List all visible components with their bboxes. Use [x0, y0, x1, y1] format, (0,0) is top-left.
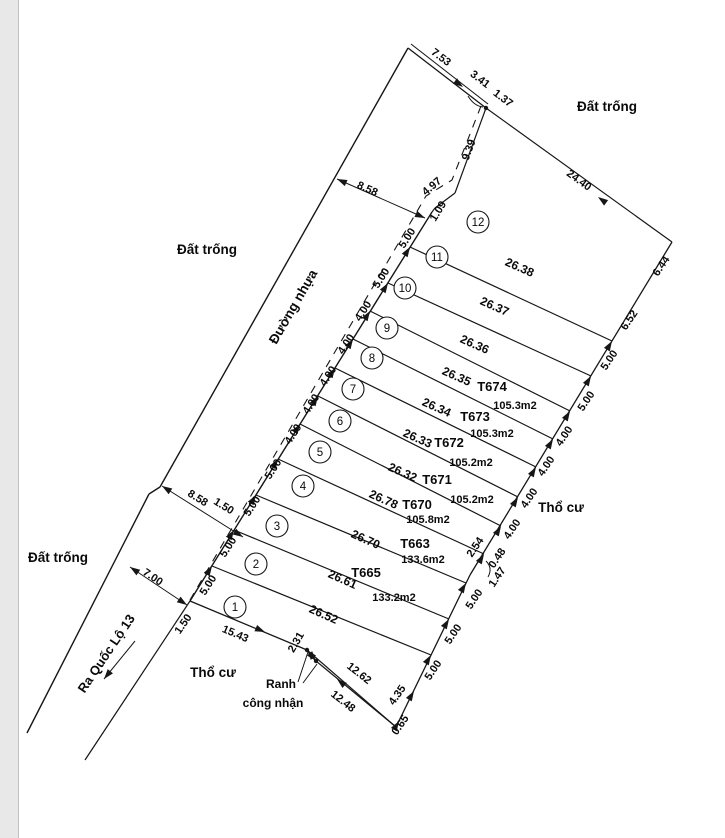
plot-number-text: 10 [399, 283, 412, 295]
junction-dot [484, 106, 488, 110]
area-label-tho-cu-e: Thổ cư [538, 500, 584, 515]
parcel-id-label: T665 [351, 565, 381, 580]
tick-arrow-icon [596, 194, 608, 205]
parcel-area-label: 133.2m2 [372, 592, 415, 604]
divider-line [370, 311, 570, 411]
rear-width-label: 4.00 [502, 517, 524, 541]
road-left-edge [160, 48, 408, 487]
dim-label: 4.97 [420, 175, 444, 198]
dim-label: 24.40 [564, 168, 593, 194]
parcel-area-label: 105.2m2 [449, 457, 492, 469]
dim-label: 9.39 [460, 138, 479, 162]
plot-length-label: 26.38 [503, 255, 536, 280]
dim-label: 7.00 [140, 567, 164, 589]
frontage-width-label: 4.00 [301, 392, 323, 417]
dim-label: 15.43 [220, 623, 250, 645]
dim-label: 1.50 [172, 612, 194, 636]
parcel-area-label: 105.3m2 [493, 400, 536, 412]
road-right-edge-lower [85, 601, 190, 760]
plot-number-text: 5 [317, 447, 323, 459]
junction-dot [305, 648, 309, 652]
area-label-dat-trong-w: Đất trống [177, 242, 237, 257]
area-label-dat-trong-sw: Đất trống [28, 550, 88, 565]
frontage-width-label: 5.00 [242, 494, 264, 519]
plot-number-text: 8 [369, 353, 375, 365]
plot-number-text: 7 [350, 384, 356, 396]
boundary-note-line2: công nhận [243, 696, 304, 710]
plot-length-label: 26.34 [420, 395, 453, 420]
tick-arrow-icon [254, 625, 266, 635]
tick-arrow-icon [458, 581, 469, 593]
plot-length-label: 26.36 [458, 332, 491, 357]
rear-width-label: 6.52 [619, 308, 641, 332]
dim-label: 2.31 [286, 630, 307, 655]
plot-number-text: 11 [431, 252, 443, 264]
parcel-id-label: T671 [422, 472, 452, 487]
frontage-width-label: 5.00 [198, 573, 220, 598]
dim-label: 7.53 [429, 46, 453, 68]
boundary-note-line1: Ranh [266, 677, 296, 691]
plot-number-text: 9 [384, 323, 390, 335]
plot-number-text: 3 [274, 521, 280, 533]
parcel-id-label: T672 [434, 435, 464, 450]
plot-number-text: 4 [300, 481, 307, 493]
plot-number-text: 1 [232, 602, 238, 614]
dim-label: 1.37 [491, 87, 515, 109]
plot-length-label: 26.33 [401, 426, 434, 451]
parcel-area-label: 105.2m2 [450, 494, 493, 506]
dim-label: 12.48 [328, 688, 357, 714]
leader-line [303, 664, 317, 683]
rear-width-label: 5.00 [464, 587, 486, 611]
plot-length-label: 26.52 [307, 602, 340, 627]
plot-length-label: 26.32 [386, 460, 419, 485]
parcel-id-label: T670 [402, 497, 432, 512]
junction-dot [314, 659, 318, 663]
plot-length-label: 26.37 [478, 294, 511, 319]
road-width-arrow-7-00-head-icon [128, 564, 140, 575]
rear-width-label: 6.44 [651, 253, 673, 278]
frontage-width-label: 5.00 [218, 535, 240, 560]
dim-label: 3.41 [468, 68, 492, 90]
dim-label: 8.58 [355, 179, 379, 199]
road-left-edge-jog [149, 487, 160, 494]
road-left-edge-lower [27, 494, 149, 733]
parcel-area-label: 133.6m2 [401, 554, 444, 566]
dim-label: 0.65 [389, 713, 411, 737]
dim-label: 1.09 [428, 199, 450, 224]
dim-label: 8.58 [185, 488, 210, 510]
highway-direction-label: Ra Quốc Lộ 13 [75, 612, 138, 696]
plot-length-label: 26.70 [349, 527, 382, 552]
plot-number-text: 6 [337, 416, 343, 428]
road-width-arrow-8-58-head-icon [336, 176, 348, 186]
dim-leader-arc [468, 96, 483, 107]
survey-sketch-page: 123456789101112Đất trốngĐất trốngĐất trố… [0, 0, 725, 838]
frontage-width-label: 4.00 [318, 364, 340, 389]
road-width-arrow-8-58-head-icon [414, 211, 426, 221]
parcel-area-label: 105.8m2 [406, 514, 449, 526]
survey-drawing: 123456789101112Đất trốngĐất trốngĐất trố… [0, 0, 725, 838]
rear-width-label: 4.00 [554, 424, 576, 448]
dim-label: 1.50 [211, 496, 236, 518]
road-name-label: Đường nhựa [266, 267, 321, 347]
frontage-width-label: 4.00 [283, 422, 305, 447]
frontage-width-label: 5.00 [371, 266, 393, 291]
area-label-dat-trong-ne: Đất trống [577, 99, 637, 114]
frontage-width-label: 4.00 [336, 332, 358, 357]
road-width-arrow-8-58 [337, 179, 425, 218]
divider-line [353, 339, 553, 439]
rear-width-label: 5.00 [576, 389, 598, 413]
plot-number-text: 12 [472, 217, 485, 229]
parcel-id-label: T663 [400, 536, 430, 551]
parcel-id-label: T673 [460, 409, 490, 424]
dim-label: 12.62 [344, 660, 373, 686]
dim-label: 4.35 [386, 683, 408, 707]
rear-width-label: 5.00 [599, 348, 621, 372]
area-label-tho-cu-s: Thổ cư [190, 665, 236, 680]
plot-number-text: 2 [253, 559, 259, 571]
parcel-area-label: 105.3m2 [470, 428, 513, 440]
tick-arrow-icon [583, 374, 594, 386]
rear-width-label: 4.00 [536, 454, 558, 478]
parcel-id-label: T674 [477, 379, 507, 394]
